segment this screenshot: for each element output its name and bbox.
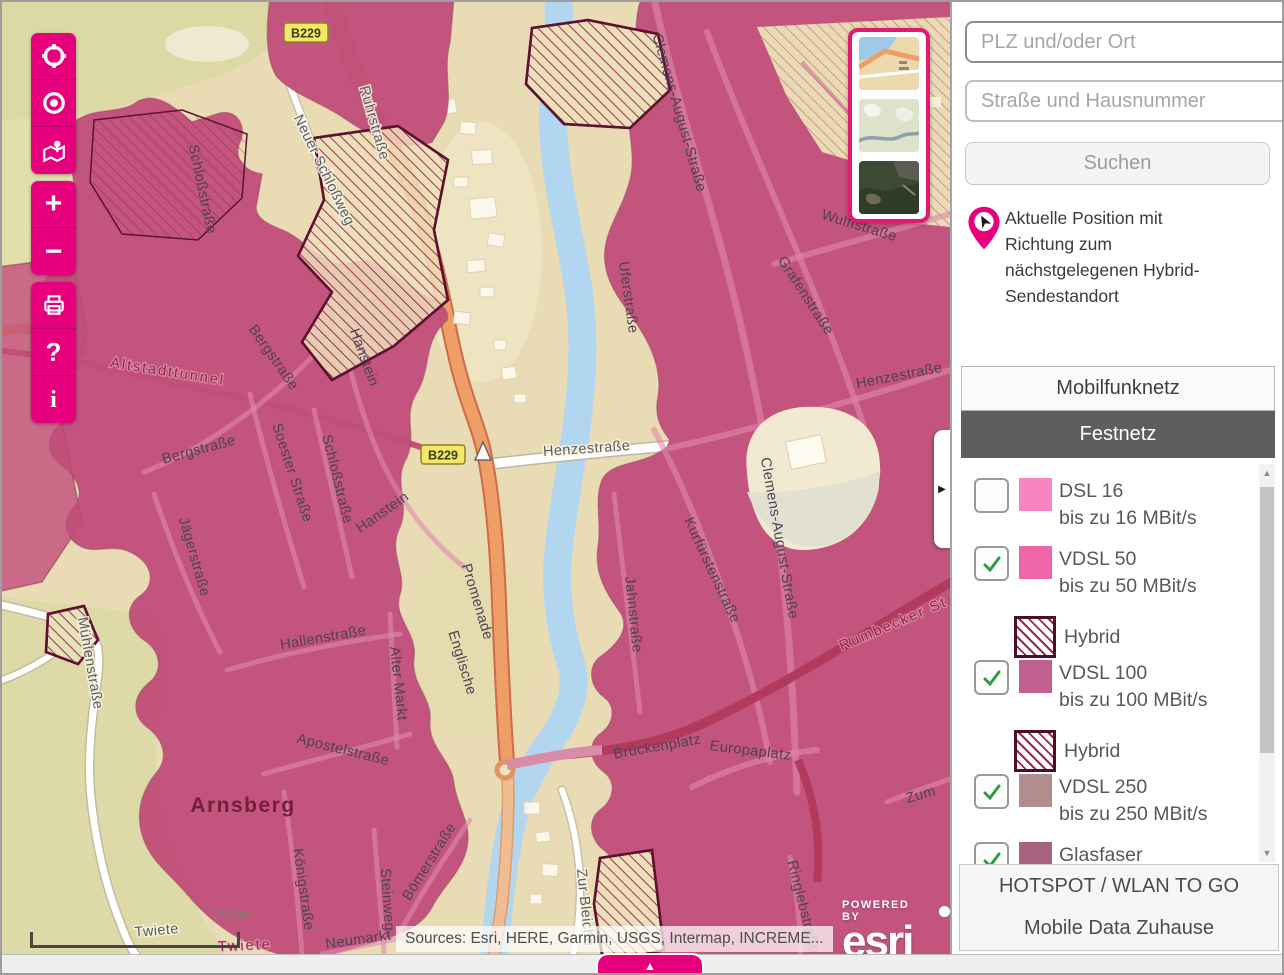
legend-sublabel: bis zu 100 MBit/s [1059, 687, 1207, 714]
current-position-info: Aktuelle Position mit Richtung zum nächs… [967, 205, 1217, 309]
hybrid-pattern-swatch [1014, 616, 1056, 658]
scrollbar-thumb[interactable] [1260, 487, 1274, 753]
info-icon: i [50, 388, 57, 412]
legend-text: VDSL 250 bis zu 250 MBit/s [1059, 774, 1207, 828]
road-shield: B229 [284, 23, 328, 42]
legend-item: Glasfaser [974, 842, 1275, 864]
svg-text:B229: B229 [291, 27, 321, 41]
overview-map-button[interactable] [31, 127, 76, 174]
legend-sublabel: bis zu 250 MBit/s [1059, 801, 1207, 828]
esri-wordmark: esri [842, 923, 950, 955]
legend-hybrid-row: Hybrid [1014, 728, 1275, 774]
position-info-text: Aktuelle Position mit Richtung zum nächs… [1005, 205, 1217, 309]
legend-item: VDSL 50 bis zu 50 MBit/s [974, 546, 1275, 600]
bullseye-icon [41, 90, 67, 116]
esri-logo: POWERED BY esri [842, 899, 950, 955]
question-icon: ? [46, 339, 62, 365]
legend-label: VDSL 50 [1059, 546, 1197, 573]
plz-ort-input[interactable] [965, 21, 1284, 63]
street-number-input[interactable] [965, 80, 1284, 122]
zoom-in-button[interactable]: + [31, 181, 76, 228]
legend-sublabel: bis zu 50 MBit/s [1059, 573, 1197, 600]
street-basemap-thumbnail[interactable] [859, 37, 919, 90]
hybrid-label: Hybrid [1064, 626, 1120, 649]
map-pin-icon [41, 138, 67, 164]
map-canvas[interactable]: B229B229 RuhrstraßeNeuer SchloßwegSchloß… [2, 2, 952, 955]
basemap-selector [848, 28, 930, 223]
map-toolbar: + − ? i [31, 33, 76, 423]
zoom-out-button[interactable]: − [31, 228, 76, 275]
satellite-basemap-thumbnail[interactable] [859, 161, 919, 214]
hybrid-label: Hybrid [1064, 740, 1120, 763]
position-pin-icon [967, 205, 1001, 309]
legend-checkbox[interactable] [974, 774, 1009, 809]
hybrid-pattern-swatch [1014, 730, 1056, 772]
coverage-map-app: B229B229 RuhrstraßeNeuer SchloßwegSchloß… [0, 0, 1284, 975]
legend-label: VDSL 250 [1059, 774, 1207, 801]
scale-label: 200m [213, 907, 251, 924]
legend-label: Glasfaser [1059, 842, 1142, 864]
tab-festnetz[interactable]: Festnetz [961, 411, 1275, 458]
network-tabs: Mobilfunknetz Festnetz [961, 366, 1275, 458]
legend-text: VDSL 100 bis zu 100 MBit/s [1059, 660, 1207, 714]
legend-text: Glasfaser [1059, 842, 1142, 864]
help-button[interactable]: ? [31, 329, 76, 376]
panel-collapse-tab[interactable]: ▶ [934, 430, 950, 548]
legend-checkbox[interactable] [974, 660, 1009, 695]
legend-list: DSL 16 bis zu 16 MBit/s VDSL 50 bis zu 5… [961, 462, 1275, 864]
map-attribution: Sources: Esri, HERE, Garmin, USGS, Inter… [396, 926, 833, 952]
svg-text:B229: B229 [428, 449, 458, 463]
legend-text: VDSL 50 bis zu 50 MBit/s [1059, 546, 1197, 600]
scroll-up-arrow[interactable]: ▲ [1259, 464, 1275, 482]
legend-checkbox[interactable] [974, 842, 1009, 864]
chevron-right-icon: ▶ [938, 484, 946, 495]
legend-item: VDSL 100 bis zu 100 MBit/s [974, 660, 1275, 714]
legend-color-swatch [1019, 660, 1052, 693]
legend-hybrid-row: Hybrid [1014, 614, 1275, 660]
hotspot-wlan-button[interactable]: HOTSPOT / WLAN TO GO [959, 864, 1279, 908]
legend-item: VDSL 250 bis zu 250 MBit/s [974, 774, 1275, 828]
legend-sublabel: bis zu 16 MBit/s [1059, 505, 1197, 532]
street-label: Arnsberg [190, 794, 295, 817]
print-button[interactable] [31, 282, 76, 329]
legend-checkbox[interactable] [974, 478, 1009, 513]
legend-checkbox[interactable] [974, 546, 1009, 581]
printer-icon [41, 292, 67, 318]
legend-color-swatch [1019, 478, 1052, 511]
chevron-up-icon: ▲ [644, 959, 656, 973]
legend-text: DSL 16 bis zu 16 MBit/s [1059, 478, 1197, 532]
legend-panel: DSL 16 bis zu 16 MBit/s VDSL 50 bis zu 5… [961, 462, 1275, 864]
locate-button[interactable] [31, 80, 76, 127]
search-button[interactable]: Suchen [965, 142, 1270, 185]
sidebar-panel: Suchen Aktuelle Position mit Richtung zu… [952, 2, 1282, 955]
legend-color-swatch [1019, 774, 1052, 807]
tab-mobilfunknetz[interactable]: Mobilfunknetz [961, 366, 1275, 411]
mobile-data-zuhause-button[interactable]: Mobile Data Zuhause [959, 907, 1279, 951]
scroll-down-arrow[interactable]: ▼ [1259, 844, 1275, 862]
info-button[interactable]: i [31, 376, 76, 423]
topo-basemap-thumbnail[interactable] [859, 99, 919, 152]
plus-icon: + [45, 189, 63, 219]
sheet-expand-button[interactable]: ▲ [596, 953, 704, 975]
legend-scrollbar[interactable]: ▲ ▼ [1259, 464, 1275, 862]
esri-dot-icon [939, 906, 950, 917]
legend-label: VDSL 100 [1059, 660, 1207, 687]
legend-label: DSL 16 [1059, 478, 1197, 505]
road-shield: B229 [421, 445, 465, 464]
scale-bar: 200m [30, 932, 240, 948]
legend-color-swatch [1019, 842, 1052, 864]
legend-item: DSL 16 bis zu 16 MBit/s [974, 478, 1275, 532]
crosshair-icon [41, 43, 67, 69]
map-graphics: B229B229 RuhrstraßeNeuer SchloßwegSchloß… [2, 2, 950, 955]
legend-color-swatch [1019, 546, 1052, 579]
zoom-extent-button[interactable] [31, 33, 76, 80]
minus-icon: − [45, 237, 63, 267]
